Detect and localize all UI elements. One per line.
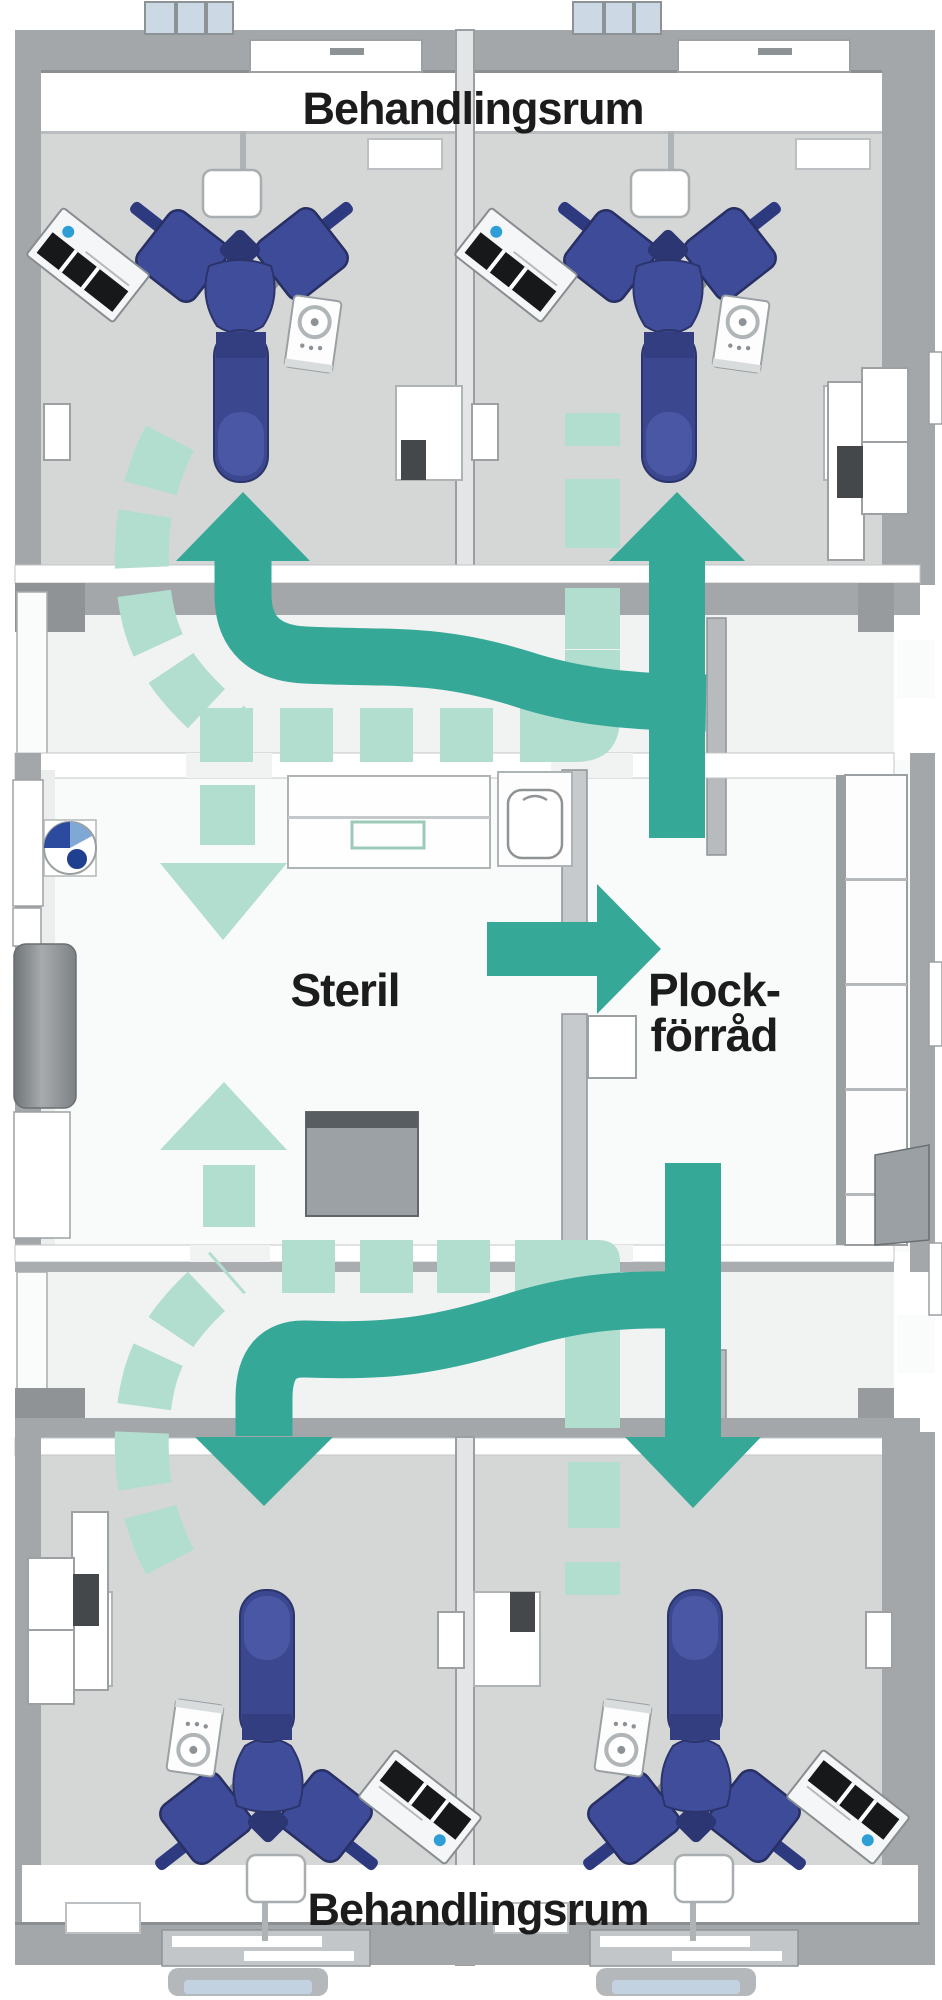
label-top-behandlingsrum: Behandlingsrum <box>302 83 643 134</box>
corridor-jamb-upper <box>707 618 726 855</box>
clean-flow-shaft-bottom <box>665 1163 721 1439</box>
door-leaf <box>588 1016 636 1078</box>
label-plock-line2: förråd <box>651 1009 778 1061</box>
floor-plan-diagram: Behandlingsrum Steril Plock- förråd Beha… <box>0 0 942 2000</box>
steril-plock-divider-lower <box>562 1014 587 1248</box>
sterilizer-machine <box>44 822 96 874</box>
sink-basin <box>508 790 562 858</box>
window <box>612 1980 740 1994</box>
clean-flow-shaft-top <box>649 556 705 838</box>
window <box>184 1980 312 1994</box>
corner-unit <box>875 1145 929 1245</box>
clinic-floor-plan-page: Behandlingsrum Steril Plock- förråd Beha… <box>0 0 942 2000</box>
label-bottom-behandlingsrum: Behandlingsrum <box>307 1884 648 1935</box>
steril-cylinder-unit <box>14 944 76 1108</box>
label-steril: Steril <box>290 964 399 1016</box>
